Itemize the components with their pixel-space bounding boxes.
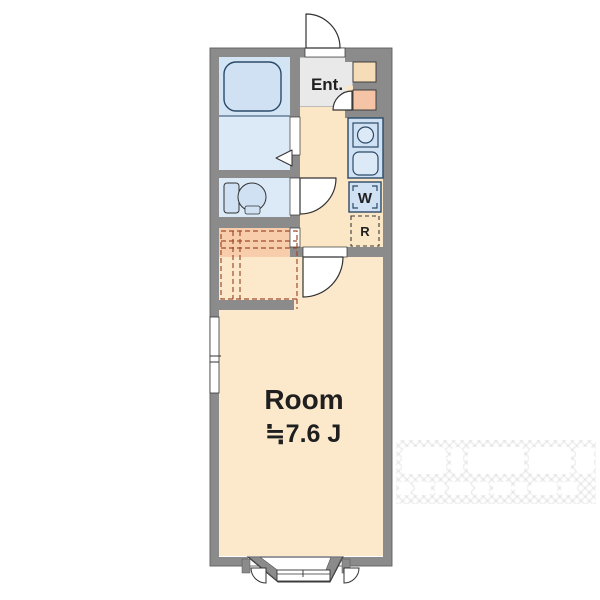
wall-bath-toilet <box>219 170 290 178</box>
wall-above-kitchen <box>345 110 392 118</box>
wall-toilet-closet <box>219 217 290 228</box>
bay-window-sill <box>277 570 330 581</box>
washer-space: W <box>349 182 381 212</box>
toilet-door-opening <box>290 178 300 215</box>
watermark-text-blob <box>402 447 446 474</box>
watermark-text-blob <box>493 482 511 495</box>
kitchen-unit <box>348 118 383 178</box>
entrance-threshold <box>305 48 345 57</box>
watermark-line-2 <box>399 482 577 495</box>
room-size-label: ≒7.6 J <box>265 420 342 448</box>
wall-storage-right <box>376 62 392 110</box>
wall-closet-room <box>210 300 294 310</box>
watermark-line-1 <box>402 447 594 474</box>
left-window <box>210 317 221 393</box>
wall-right <box>383 48 392 566</box>
room-name-label: Room <box>264 384 343 415</box>
toilet-base <box>245 206 260 214</box>
storage-box-top <box>353 62 376 82</box>
washer-label: W <box>358 190 373 207</box>
watermark <box>396 440 596 504</box>
entrance-label: Ent. <box>311 75 343 94</box>
watermark-text-blob <box>576 447 594 474</box>
entrance-door-swing <box>306 14 340 48</box>
bay-window <box>242 557 359 583</box>
wall-corridor-1 <box>290 57 300 117</box>
watermark-text-blob <box>449 482 471 495</box>
watermark-text-blob <box>475 482 489 495</box>
stove-burner <box>358 127 374 143</box>
bathroom-door-opening <box>290 117 300 155</box>
floorplan-canvas: W R Ent. Room ≒7.6 J <box>0 0 600 600</box>
watermark-text-blob <box>531 482 557 495</box>
wall-post-left <box>242 559 250 573</box>
wall-bottom-right <box>343 557 392 566</box>
storage-box-bottom <box>353 90 376 110</box>
watermark-text-blob <box>399 482 411 495</box>
bathtub <box>224 62 281 111</box>
floorplan-drawing: W R Ent. Room ≒7.6 J <box>0 0 600 600</box>
watermark-text-blob <box>515 482 527 495</box>
watermark-text-blob <box>561 482 577 495</box>
toilet-tank <box>224 183 239 213</box>
room-door-opening <box>303 247 347 257</box>
casement-swing-left <box>251 568 266 583</box>
watermark-text-blob <box>529 447 571 474</box>
kitchen-sink <box>353 152 378 175</box>
refrigerator-label: R <box>360 224 370 239</box>
watermark-text-blob <box>435 482 445 495</box>
casement-swing-right <box>344 568 359 583</box>
left-window-frame <box>210 317 219 393</box>
toilet-fixture <box>224 183 266 214</box>
watermark-text-blob <box>451 447 463 474</box>
watermark-text-blob <box>415 482 431 495</box>
wall-storage-divider <box>353 82 377 90</box>
watermark-text-blob <box>468 447 524 474</box>
wall-corridor-3 <box>290 215 300 228</box>
